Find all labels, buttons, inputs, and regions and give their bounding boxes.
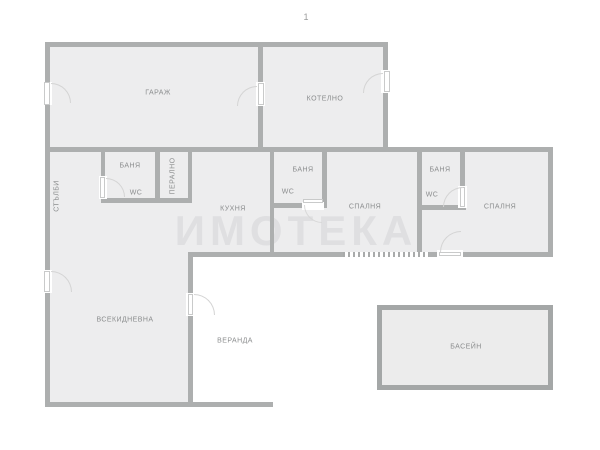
bath2-door-leaf: [303, 199, 323, 203]
room-label-laundry: ПЕРАЛНО: [170, 158, 177, 195]
room-label-stairs: СТЪЛБИ: [54, 180, 61, 212]
veranda-door-leaf: [188, 294, 193, 315]
watermark: ИМОТЕКА: [175, 207, 417, 255]
room-label-bath1: БАНЯ: [119, 163, 140, 170]
room-label-living: ВСЕКИДНЕВНА: [96, 317, 153, 324]
room-label-boiler: КОТЕЛНО: [307, 96, 344, 103]
wall-bath1-bottom: [101, 198, 192, 203]
floor-plan: ИМОТЕКА: [0, 0, 600, 450]
wall-boiler-right: [383, 42, 388, 152]
room-label-wc2: WC: [282, 189, 295, 196]
room-label-wc1: WC: [130, 190, 143, 197]
room-label-bedroom1: СПАЛНЯ: [349, 204, 381, 211]
living-exterior-door-leaf: [44, 271, 50, 292]
room-label-bedroom2: СПАЛНЯ: [484, 204, 516, 211]
wall-kitchen-bedroom-divider: [270, 147, 274, 257]
wall-living-bottom: [45, 402, 273, 407]
wall-mid-band: [45, 147, 553, 152]
plan-number: 1: [303, 12, 308, 22]
veranda-door-arc: [194, 294, 215, 315]
garage-boiler-door-leaf: [258, 83, 264, 105]
wall-laundry-right: [188, 147, 192, 203]
room-label-pool: БАСЕЙН: [450, 344, 481, 351]
wall-right-outer: [548, 147, 553, 257]
room-label-kitchen: КУХНЯ: [220, 206, 246, 213]
bedroom1-window: [343, 252, 429, 257]
boiler-door-leaf: [384, 71, 390, 92]
room-label-bath2: БАНЯ: [292, 167, 313, 174]
garage-exterior-door-leaf: [44, 82, 50, 105]
wall-bath1-right: [155, 147, 160, 203]
wall-bedroom-divider: [417, 147, 422, 257]
room-label-bath3: БАНЯ: [429, 167, 450, 174]
bath1-door-leaf: [100, 177, 105, 198]
bedroom2-exterior-door-leaf: [439, 252, 461, 256]
wall-top-outer: [45, 42, 388, 47]
room-label-garage: ГАРАЖ: [145, 90, 171, 97]
wall-living-right: [188, 252, 193, 407]
room-label-veranda: ВЕРАНДА: [217, 338, 253, 345]
room-label-wc3: WC: [426, 192, 439, 199]
